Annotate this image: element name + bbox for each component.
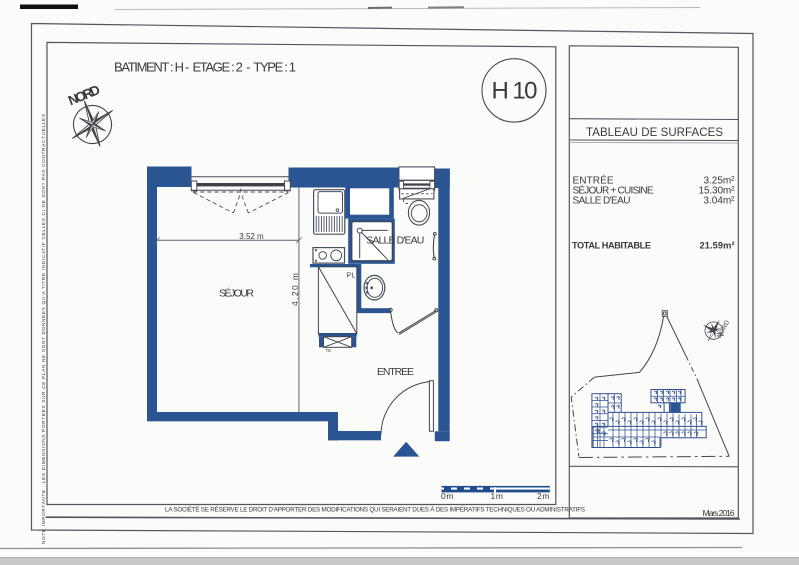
svg-text:TOTAL HABITABLE: TOTAL HABITABLE <box>572 241 651 251</box>
svg-text:1m: 1m <box>491 491 504 501</box>
svg-text:3.52 m: 3.52 m <box>239 232 264 241</box>
svg-text:TE: TE <box>326 348 332 353</box>
svg-text:2m: 2m <box>537 491 550 501</box>
svg-text:SALLE D'EAU: SALLE D'EAU <box>573 195 631 206</box>
svg-text:H 10: H 10 <box>492 77 538 104</box>
svg-text:NOTE IMPORTANTE : LES DIMENSIO: NOTE IMPORTANTE : LES DIMENSIONS PORTEES… <box>41 114 46 544</box>
svg-text:BATIMENT : H - ETAGE : 2 -: BATIMENT : H - ETAGE : 2 - TYPE : 1 <box>114 60 296 75</box>
svg-text:0m: 0m <box>441 491 454 501</box>
svg-text:3.04m²: 3.04m² <box>704 195 736 206</box>
svg-text:21.59m²: 21.59m² <box>700 241 735 251</box>
svg-text:SÉJOUR: SÉJOUR <box>219 286 254 299</box>
svg-text:TABLEAU DE SURFACES: TABLEAU DE SURFACES <box>586 127 723 139</box>
svg-text:PL: PL <box>347 273 356 280</box>
svg-text:SALLE D'EAU: SALLE D'EAU <box>366 235 424 247</box>
svg-text:LA SOCIÉTÉ SE RÉSERVE LE DROIT: LA SOCIÉTÉ SE RÉSERVE LE DROIT D'APPORTE… <box>165 505 585 514</box>
svg-text:ENTREE: ENTREE <box>377 366 414 378</box>
svg-text:Mars 2016: Mars 2016 <box>703 508 735 518</box>
